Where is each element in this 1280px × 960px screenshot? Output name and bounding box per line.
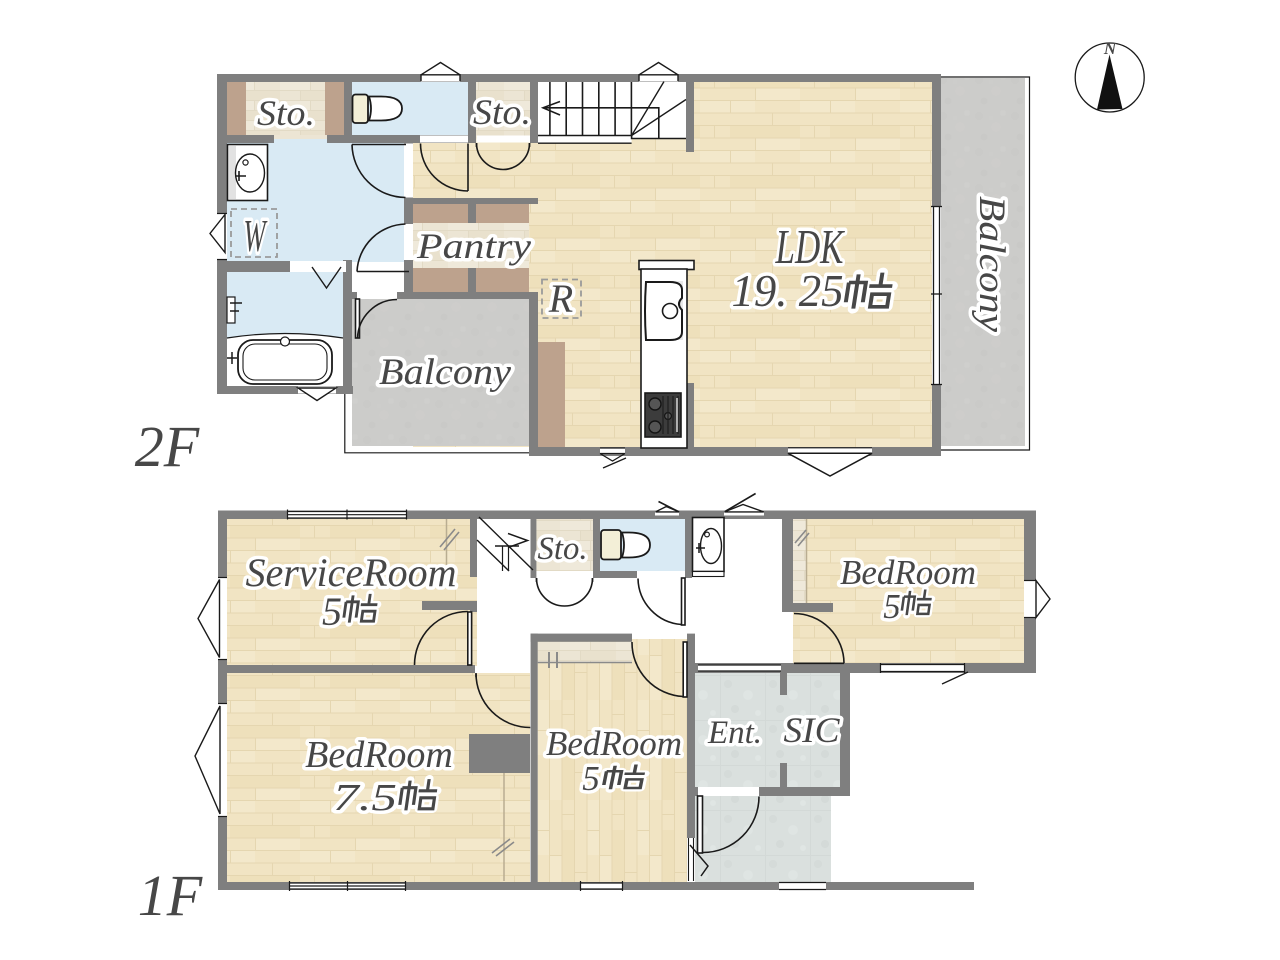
- svg-text:Sto.: Sto.: [257, 93, 315, 133]
- svg-text:BedRoom: BedRoom: [546, 724, 682, 763]
- svg-text:R: R: [548, 276, 573, 321]
- svg-text:Balcony: Balcony: [971, 196, 1012, 333]
- svg-text:ServiceRoom: ServiceRoom: [245, 550, 456, 595]
- svg-text:Sto.: Sto.: [473, 92, 531, 132]
- svg-text:2F: 2F: [135, 414, 200, 479]
- svg-text:Sto.: Sto.: [538, 531, 588, 567]
- svg-text:Ent.: Ent.: [707, 715, 762, 751]
- svg-text:BedRoom: BedRoom: [305, 734, 453, 776]
- svg-text:7.5: 7.5: [333, 777, 397, 819]
- svg-text:5: 5: [582, 759, 600, 798]
- svg-text:N: N: [1103, 39, 1117, 58]
- svg-text:5: 5: [322, 589, 342, 634]
- svg-text:Balcony: Balcony: [379, 352, 512, 393]
- svg-text:19. 25: 19. 25: [732, 265, 844, 316]
- svg-text:BedRoom: BedRoom: [840, 553, 976, 592]
- svg-text:SIC: SIC: [784, 710, 841, 750]
- svg-text:5: 5: [883, 587, 901, 626]
- svg-text:Pantry: Pantry: [416, 226, 531, 266]
- svg-text:1F: 1F: [138, 863, 203, 928]
- svg-text:W: W: [244, 210, 268, 261]
